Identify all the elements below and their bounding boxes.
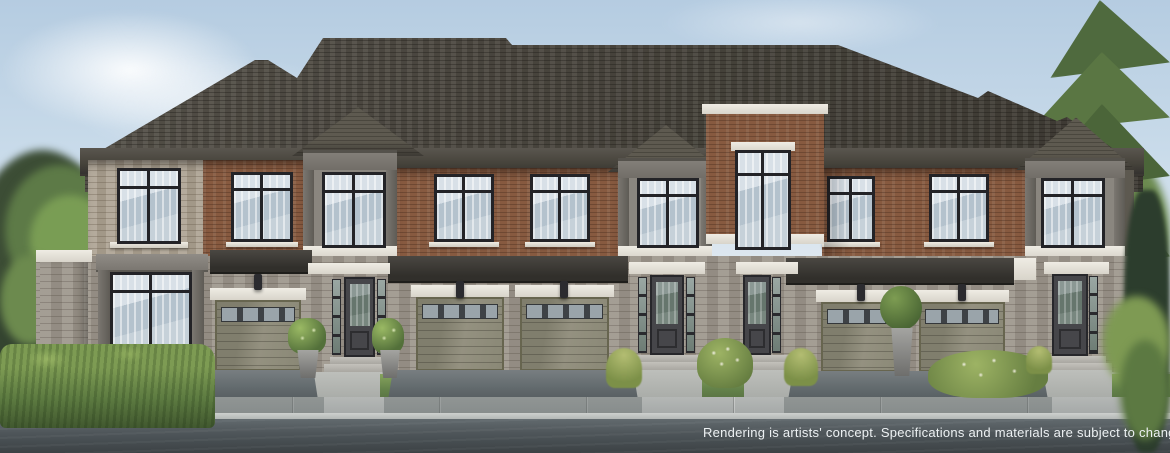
tower-shadow	[824, 168, 850, 260]
window-sill	[924, 242, 994, 247]
entry-walkway	[318, 372, 380, 400]
garage-canopy	[210, 250, 312, 274]
upper-window	[434, 174, 494, 242]
door-sidelight	[332, 279, 341, 355]
bay-window	[1041, 178, 1105, 248]
upper-window	[231, 172, 293, 242]
door-sidelight	[772, 277, 781, 353]
wing-cap	[36, 250, 92, 262]
wall-sconce-light	[456, 281, 464, 298]
window-sill	[525, 242, 595, 247]
disclaimer-text: Rendering is artists' concept. Specifica…	[703, 424, 1170, 442]
bay-post	[386, 170, 397, 256]
wall-sconce-light	[254, 274, 262, 290]
entry-lintel	[629, 262, 705, 274]
entry-lintel	[736, 262, 798, 274]
entry-door	[650, 275, 684, 355]
tower-tall-window	[735, 150, 791, 250]
ornamental-grass	[784, 348, 818, 386]
door-sidelight	[638, 277, 647, 353]
bay-window	[322, 172, 386, 248]
garage-door	[416, 297, 504, 371]
door-sidelight	[686, 277, 695, 353]
upper-window	[117, 168, 181, 244]
entry-walkway	[1048, 370, 1112, 400]
entry-door	[344, 277, 375, 357]
ground-window-post	[192, 270, 204, 352]
entry-walkway	[638, 370, 702, 400]
garage-canopy	[786, 258, 1014, 285]
ornamental-grass	[1026, 346, 1052, 374]
window-sill	[429, 242, 499, 247]
planter-shrub	[288, 318, 326, 354]
ground-window-post	[98, 270, 110, 352]
flowering-shrub	[697, 338, 753, 388]
driveway-crossing	[198, 397, 324, 414]
boxwood-hedge	[0, 344, 215, 428]
entry-door	[1052, 274, 1088, 356]
wall-sconce-light	[560, 281, 568, 298]
entry-door	[743, 275, 771, 355]
entry-steps	[324, 364, 392, 372]
driveway-crossing	[784, 397, 1052, 414]
upper-window	[530, 174, 590, 242]
boxwood-ball	[880, 286, 922, 330]
door-sidelight	[1089, 276, 1098, 354]
entry-steps	[634, 355, 698, 362]
ornamental-grass	[606, 348, 642, 388]
entry-lintel	[1044, 262, 1109, 274]
bay-post	[303, 170, 314, 256]
canopy-end-block	[1014, 258, 1036, 280]
entry-lintel	[308, 263, 390, 274]
entry-steps	[1046, 356, 1106, 363]
driveway	[388, 370, 638, 400]
upper-window	[929, 174, 989, 242]
wall-sconce-light	[958, 284, 966, 301]
garage-door	[520, 297, 609, 371]
planter-shrub	[372, 318, 404, 354]
wall-sconce-light	[857, 284, 865, 301]
ground-window	[110, 272, 192, 350]
driveway-crossing	[384, 397, 642, 414]
garage-canopy	[388, 256, 628, 283]
entry-steps	[330, 357, 386, 364]
window-sill	[226, 242, 298, 247]
tower-parapet-cap	[702, 104, 828, 114]
architectural-rendering-scene: Rendering is artists' concept. Specifica…	[0, 0, 1170, 453]
bay-window	[637, 178, 699, 248]
